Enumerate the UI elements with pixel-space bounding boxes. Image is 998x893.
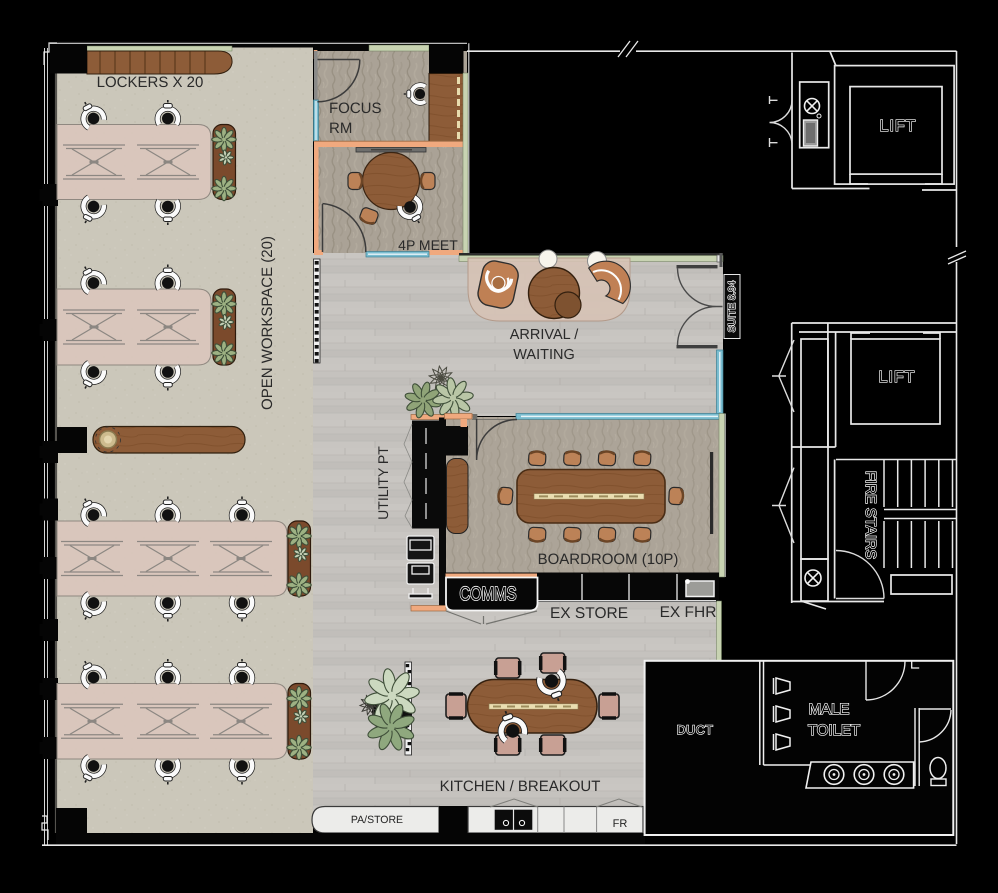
svg-text:RM: RM bbox=[329, 120, 352, 137]
svg-text:COMMS: COMMS bbox=[460, 584, 517, 605]
svg-text:LOCKERS X 20: LOCKERS X 20 bbox=[97, 74, 204, 91]
svg-text:KITCHEN / BREAKOUT: KITCHEN / BREAKOUT bbox=[440, 778, 601, 795]
svg-text:EX FHR: EX FHR bbox=[660, 604, 717, 621]
svg-text:UTILITY PT: UTILITY PT bbox=[375, 446, 391, 520]
svg-text:WAITING: WAITING bbox=[513, 347, 574, 363]
svg-text:BOARDROOM (10P): BOARDROOM (10P) bbox=[538, 551, 679, 568]
svg-text:LIFT: LIFT bbox=[879, 369, 916, 386]
svg-text:OPEN WORKSPACE (20): OPEN WORKSPACE (20) bbox=[259, 236, 276, 410]
svg-text:4P MEET: 4P MEET bbox=[398, 237, 458, 253]
svg-text:FOCUS: FOCUS bbox=[329, 100, 382, 117]
svg-text:EX STORE: EX STORE bbox=[550, 605, 628, 622]
svg-text:FIRE STAIRS: FIRE STAIRS bbox=[862, 471, 878, 559]
svg-text:FR: FR bbox=[613, 818, 628, 830]
svg-text:DUCT: DUCT bbox=[677, 723, 714, 737]
svg-text:PA/STORE: PA/STORE bbox=[351, 814, 403, 826]
svg-text:ARRIVAL /: ARRIVAL / bbox=[510, 327, 579, 343]
svg-text:MALE: MALE bbox=[809, 701, 850, 718]
svg-text:TOILET: TOILET bbox=[808, 722, 860, 739]
svg-text:SUITE 8.94: SUITE 8.94 bbox=[727, 280, 738, 332]
svg-text:LIFT: LIFT bbox=[880, 118, 917, 135]
